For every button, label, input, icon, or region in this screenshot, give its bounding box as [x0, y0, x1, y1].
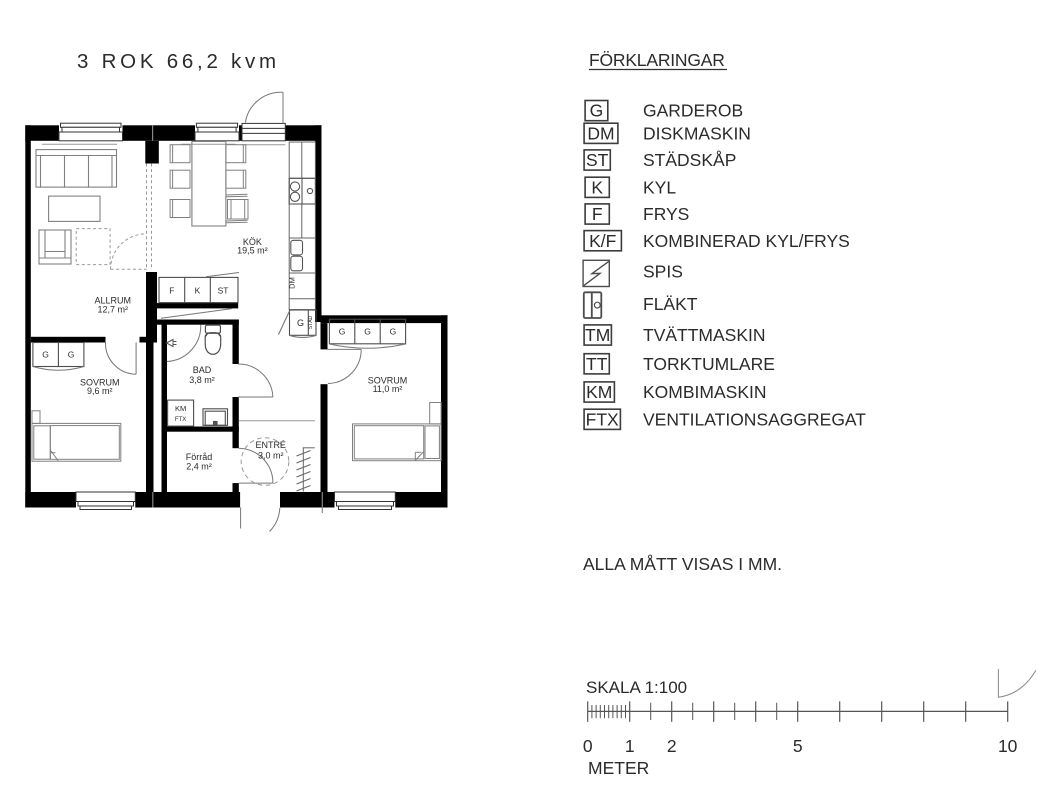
svg-text:2: 2 [667, 736, 677, 756]
svg-text:ALLA MÅTT VISAS I MM.: ALLA MÅTT VISAS I MM. [583, 554, 782, 574]
svg-text:G: G [339, 327, 346, 337]
svg-text:DM: DM [587, 123, 614, 143]
svg-text:G: G [364, 327, 371, 337]
svg-text:Förråd: Förråd [186, 452, 213, 462]
svg-text:G: G [42, 350, 49, 360]
svg-text:FRYS: FRYS [643, 204, 689, 224]
svg-text:KYL: KYL [643, 177, 676, 197]
svg-text:ST: ST [218, 285, 229, 295]
svg-text:0: 0 [583, 736, 593, 756]
svg-text:TM: TM [585, 325, 610, 345]
svg-text:FTX: FTX [586, 409, 619, 429]
svg-text:1: 1 [625, 736, 635, 756]
svg-text:KOMBIMASKIN: KOMBIMASKIN [643, 382, 767, 402]
svg-text:K: K [591, 177, 603, 197]
svg-text:ST: ST [586, 150, 609, 170]
svg-text:3 ROK 66,2 kvm: 3 ROK 66,2 kvm [77, 50, 280, 73]
svg-text:F: F [169, 285, 174, 295]
svg-text:STÄD: STÄD [307, 315, 314, 329]
svg-text:GARDEROB: GARDEROB [643, 101, 743, 121]
svg-text:19,5 m²: 19,5 m² [237, 246, 268, 256]
svg-text:FLÄKT: FLÄKT [643, 294, 698, 314]
svg-text:FÖRKLARINGAR: FÖRKLARINGAR [589, 50, 725, 70]
svg-text:F: F [592, 204, 603, 224]
svg-text:G: G [390, 327, 397, 337]
svg-text:12,7 m²: 12,7 m² [98, 305, 129, 315]
svg-text:DISKMASKIN: DISKMASKIN [643, 123, 751, 143]
svg-text:11,0 m²: 11,0 m² [373, 384, 403, 394]
svg-text:G: G [297, 318, 304, 328]
svg-text:METER: METER [588, 758, 649, 778]
svg-text:DM: DM [288, 277, 297, 289]
svg-text:2,4 m²: 2,4 m² [186, 462, 212, 472]
svg-text:ENTRÉ: ENTRÉ [255, 440, 286, 450]
svg-text:STÄDSKÅP: STÄDSKÅP [643, 150, 736, 170]
svg-text:TT: TT [586, 354, 608, 374]
svg-text:TVÄTTMASKIN: TVÄTTMASKIN [643, 325, 766, 345]
svg-text:SKALA 1:100: SKALA 1:100 [586, 678, 687, 697]
svg-text:TORKTUMLARE: TORKTUMLARE [643, 354, 775, 374]
svg-text:9,6 m²: 9,6 m² [87, 386, 113, 396]
svg-text:3,8 m²: 3,8 m² [189, 375, 215, 385]
svg-text:K: K [195, 285, 201, 295]
svg-text:K/F: K/F [589, 231, 616, 251]
svg-text:3,0 m²: 3,0 m² [258, 451, 284, 461]
svg-text:10: 10 [998, 736, 1018, 756]
svg-text:VENTILATIONSAGGREGAT: VENTILATIONSAGGREGAT [643, 409, 866, 429]
svg-text:G: G [590, 101, 604, 121]
svg-text:KM: KM [586, 382, 612, 402]
svg-text:5: 5 [793, 736, 803, 756]
svg-text:KOMBINERAD KYL/FRYS: KOMBINERAD KYL/FRYS [643, 231, 850, 251]
svg-text:G: G [68, 350, 75, 360]
svg-text:SPIS: SPIS [643, 262, 683, 282]
svg-text:KM: KM [175, 404, 186, 413]
svg-text:BAD: BAD [193, 365, 212, 375]
svg-text:FTX: FTX [175, 417, 186, 423]
